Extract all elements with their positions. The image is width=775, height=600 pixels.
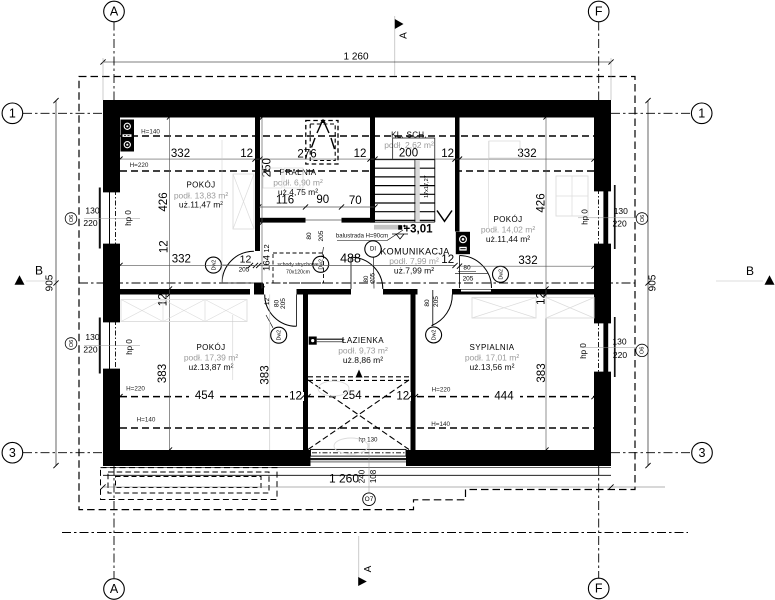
svg-text:70: 70: [349, 195, 362, 207]
svg-text:1 260: 1 260: [343, 52, 368, 63]
svg-text:130: 130: [612, 336, 626, 346]
svg-text:1 260: 1 260: [329, 472, 359, 486]
svg-text:12: 12: [240, 148, 253, 160]
svg-text:205: 205: [433, 296, 440, 307]
svg-text:164: 164: [262, 255, 273, 271]
svg-text:balustrada H=90cm: balustrada H=90cm: [336, 234, 388, 240]
svg-text:488: 488: [340, 252, 361, 266]
svg-text:383: 383: [536, 363, 548, 382]
svg-text:SYPIALNIA: SYPIALNIA: [470, 343, 515, 352]
svg-text:H=140: H=140: [141, 129, 160, 136]
svg-text:130: 130: [614, 206, 628, 216]
svg-text:F: F: [595, 582, 603, 596]
svg-text:H=220: H=220: [432, 387, 451, 394]
svg-text:17x17,27: 17x17,27: [424, 175, 430, 198]
svg-text:POKÓJ: POKÓJ: [186, 181, 215, 190]
svg-text:O7: O7: [365, 496, 374, 503]
svg-text:O6: O6: [69, 340, 75, 347]
svg-text:12: 12: [289, 390, 302, 402]
svg-text:O6: O6: [640, 215, 646, 222]
svg-text:108: 108: [369, 469, 378, 483]
svg-text:80: 80: [306, 232, 313, 240]
svg-text:254: 254: [342, 390, 362, 402]
svg-text:12: 12: [262, 244, 271, 252]
svg-text:1: 1: [9, 106, 16, 120]
svg-text:80: 80: [463, 265, 471, 272]
svg-text:uż.11,47 m²: uż.11,47 m²: [179, 200, 223, 210]
svg-text:905: 905: [45, 274, 56, 291]
svg-text:B: B: [35, 264, 43, 278]
svg-text:O6: O6: [69, 215, 75, 222]
svg-text:POKÓJ: POKÓJ: [493, 215, 522, 224]
svg-text:332: 332: [171, 148, 190, 160]
svg-text:A: A: [398, 32, 409, 39]
svg-text:H=140: H=140: [137, 417, 156, 424]
svg-text:podł. 7,99 m²: podł. 7,99 m²: [389, 256, 439, 266]
svg-text:3: 3: [699, 446, 706, 460]
svg-text:1: 1: [698, 106, 705, 120]
svg-text:A: A: [110, 582, 119, 596]
svg-text:DI: DI: [370, 247, 376, 253]
svg-text:B: B: [746, 264, 754, 278]
svg-text:A: A: [363, 565, 374, 572]
svg-text:80: 80: [364, 275, 370, 282]
svg-text:200: 200: [399, 148, 418, 160]
svg-text:12: 12: [240, 253, 252, 265]
svg-text:444: 444: [494, 390, 514, 402]
svg-text:F: F: [595, 5, 603, 19]
svg-text:383: 383: [260, 365, 272, 384]
svg-text:12: 12: [441, 148, 454, 160]
svg-text:332: 332: [172, 254, 191, 266]
svg-text:uż.11,44 m²: uż.11,44 m²: [486, 234, 530, 244]
svg-text:90: 90: [316, 194, 329, 206]
svg-text:80: 80: [424, 299, 431, 307]
svg-text:12: 12: [159, 240, 171, 253]
svg-text:220: 220: [83, 218, 97, 228]
svg-text:426: 426: [536, 193, 548, 212]
svg-text:H=140: H=140: [431, 421, 450, 428]
svg-text:hp 0: hp 0: [125, 339, 134, 355]
svg-text:A: A: [110, 5, 119, 19]
svg-text:426: 426: [158, 192, 170, 211]
svg-text:H=220: H=220: [126, 386, 145, 393]
svg-text:12: 12: [441, 254, 454, 266]
svg-text:130: 130: [85, 206, 99, 216]
svg-text:220: 220: [613, 350, 627, 360]
svg-text:12: 12: [264, 298, 271, 306]
svg-text:PRALNIA: PRALNIA: [279, 168, 316, 177]
svg-text:ŁAZIENKA: ŁAZIENKA: [342, 336, 384, 345]
svg-text:905: 905: [648, 274, 659, 291]
svg-text:12: 12: [354, 148, 367, 160]
svg-text:116: 116: [276, 195, 294, 207]
svg-text:POKÓJ: POKÓJ: [196, 343, 225, 352]
svg-text:220: 220: [83, 344, 97, 354]
svg-text:205: 205: [280, 298, 287, 309]
svg-text:Dw2: Dw2: [431, 330, 437, 340]
svg-text:12: 12: [396, 390, 409, 402]
svg-text:O6: O6: [640, 347, 646, 354]
svg-text:383: 383: [157, 364, 169, 383]
svg-text:3: 3: [9, 446, 16, 460]
svg-text:205: 205: [463, 275, 474, 282]
svg-text:uż.8,86 m²: uż.8,86 m²: [343, 355, 383, 365]
svg-text:H=220: H=220: [130, 162, 149, 169]
svg-text:205: 205: [239, 267, 250, 274]
svg-text:205: 205: [370, 272, 376, 283]
svg-text:Dw2: Dw2: [498, 269, 504, 279]
svg-text:332: 332: [518, 255, 537, 267]
svg-text:uż.13,87 m²: uż.13,87 m²: [189, 362, 234, 372]
svg-text:205: 205: [318, 230, 325, 241]
svg-text:KOMUNIKACJA: KOMUNIKACJA: [380, 246, 449, 256]
svg-text:130: 130: [85, 332, 99, 342]
svg-text:276: 276: [297, 148, 316, 160]
svg-text:454: 454: [195, 390, 215, 402]
svg-text:Dw2: Dw2: [319, 259, 325, 269]
svg-text:220: 220: [613, 218, 627, 228]
svg-text:Dw2: Dw2: [277, 330, 283, 340]
svg-text:uż.13,56 m²: uż.13,56 m²: [470, 362, 515, 372]
svg-text:uż.7,99 m²: uż.7,99 m²: [394, 266, 434, 276]
svg-text:hp 0: hp 0: [579, 343, 588, 359]
svg-text:Dw2: Dw2: [211, 260, 217, 270]
svg-text:240: 240: [357, 469, 366, 483]
svg-text:hp 0: hp 0: [124, 210, 133, 226]
svg-text:70x120cm: 70x120cm: [286, 269, 310, 275]
